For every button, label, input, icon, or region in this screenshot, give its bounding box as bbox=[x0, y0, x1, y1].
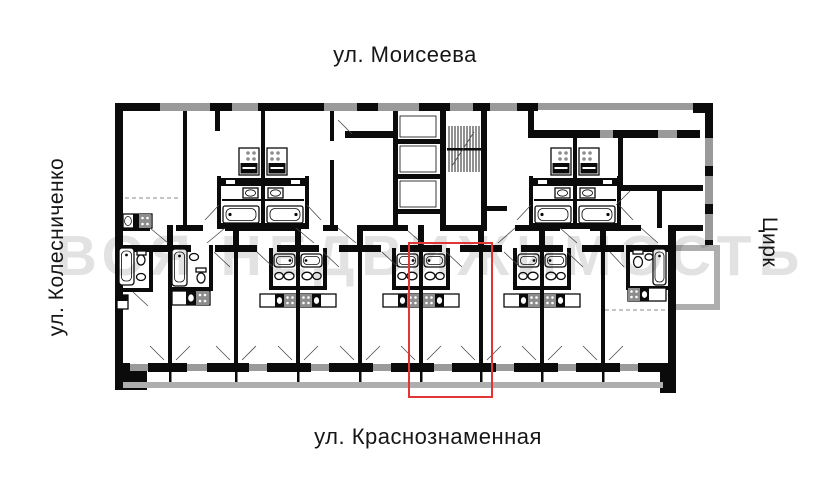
highlight-overlay bbox=[0, 0, 833, 500]
highlighted-unit-rectangle bbox=[409, 243, 492, 397]
floor-plan-page: ул. Моисеева ул. Краснознаменная ул. Кол… bbox=[0, 0, 833, 500]
